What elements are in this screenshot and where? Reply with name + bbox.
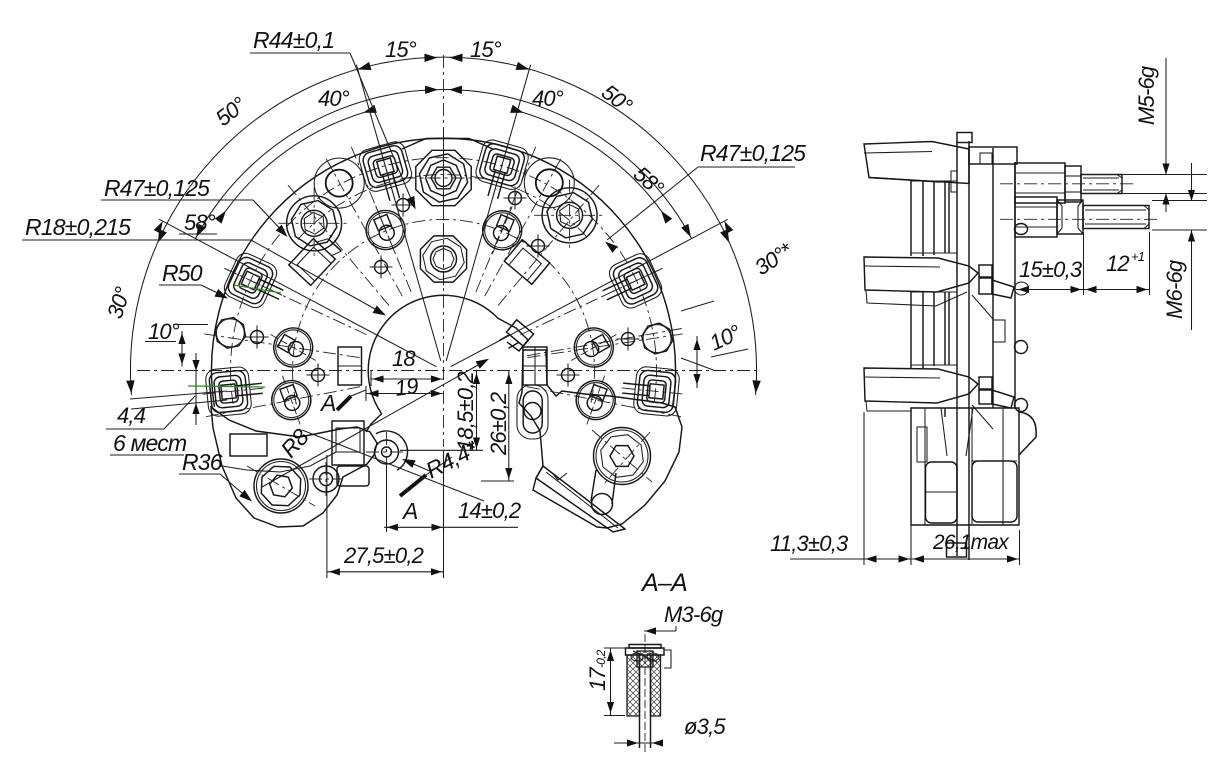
svg-text:R50: R50: [162, 260, 203, 286]
svg-text:40°: 40°: [532, 86, 564, 111]
svg-text:58°: 58°: [184, 210, 216, 235]
svg-text:17: 17: [585, 667, 610, 691]
svg-text:R47±0,125: R47±0,125: [700, 140, 806, 166]
svg-text:A: A: [401, 498, 418, 524]
svg-text:R47±0,125: R47±0,125: [104, 175, 210, 201]
svg-text:R18±0,215: R18±0,215: [25, 214, 131, 240]
svg-text:15°: 15°: [470, 37, 502, 62]
svg-text:4,4: 4,4: [117, 403, 146, 428]
svg-text:R44±0,1: R44±0,1: [253, 27, 334, 53]
svg-text:15±0,3: 15±0,3: [1019, 257, 1083, 282]
svg-text:ø3,5: ø3,5: [684, 714, 726, 739]
svg-text:M5-6g: M5-6g: [1134, 65, 1159, 125]
svg-text:40°: 40°: [318, 86, 350, 111]
svg-text:6 мест: 6 мест: [113, 430, 187, 456]
svg-text:+1: +1: [1131, 249, 1145, 264]
svg-text:15°: 15°: [385, 37, 417, 62]
svg-text:A–A: A–A: [640, 569, 687, 597]
svg-text:26±0,2: 26±0,2: [486, 392, 511, 456]
svg-text:27,5±0,2: 27,5±0,2: [343, 543, 424, 568]
svg-text:12: 12: [1106, 251, 1129, 276]
svg-text:A: A: [319, 390, 336, 416]
svg-text:26,1max: 26,1max: [932, 531, 1010, 554]
svg-text:-0,2: -0,2: [594, 649, 608, 668]
svg-text:M6-6g: M6-6g: [1162, 259, 1187, 319]
svg-text:18: 18: [392, 346, 416, 371]
svg-text:19: 19: [393, 373, 420, 401]
svg-text:11,3±0,3: 11,3±0,3: [770, 531, 849, 556]
svg-text:14±0,2: 14±0,2: [458, 498, 521, 523]
svg-text:10°: 10°: [148, 319, 180, 344]
svg-text:R36: R36: [182, 449, 223, 475]
svg-text:M3-6g: M3-6g: [664, 602, 724, 627]
